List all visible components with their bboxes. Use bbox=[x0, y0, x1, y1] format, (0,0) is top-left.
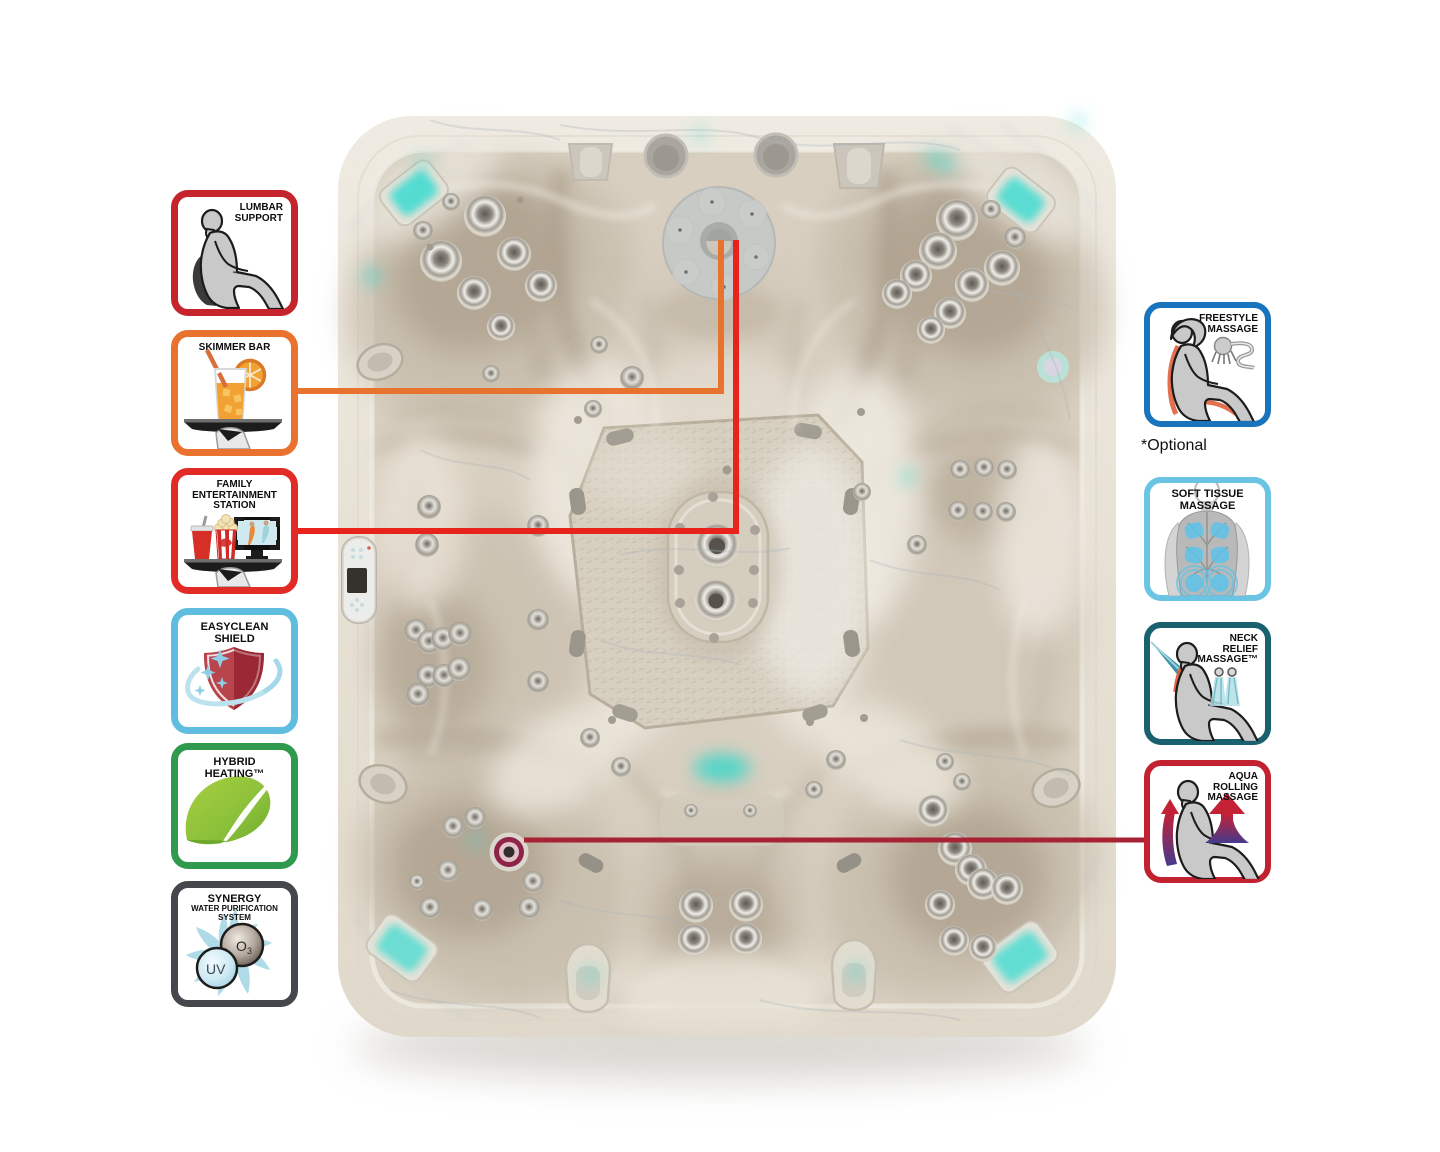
svg-text:UV: UV bbox=[206, 961, 226, 977]
svg-text:O: O bbox=[236, 938, 247, 954]
svg-text:3: 3 bbox=[247, 946, 252, 956]
